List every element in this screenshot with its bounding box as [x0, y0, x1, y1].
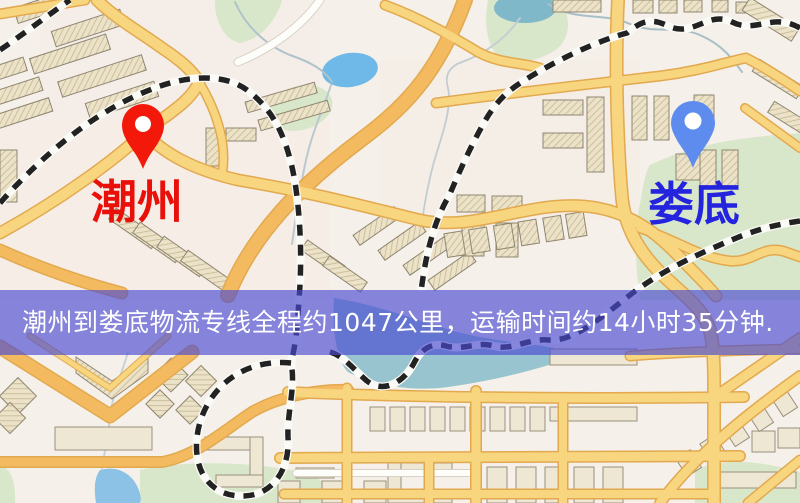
- map-screenshot: 潮州 娄底 潮州到娄底物流专线全程约1047公里，运输时间约14小时35分钟.: [0, 0, 800, 503]
- map-canvas: 潮州 娄底 潮州到娄底物流专线全程约1047公里，运输时间约14小时35分钟.: [0, 0, 800, 503]
- info-banner: 潮州到娄底物流专线全程约1047公里，运输时间约14小时35分钟.: [0, 290, 800, 355]
- destination-label: 娄底: [648, 177, 740, 231]
- origin-label: 潮州: [91, 175, 183, 229]
- banner-text: 潮州到娄底物流专线全程约1047公里，运输时间约14小时35分钟.: [22, 308, 774, 337]
- origin-pin-hole: [135, 116, 151, 132]
- destination-pin-hole: [685, 113, 702, 130]
